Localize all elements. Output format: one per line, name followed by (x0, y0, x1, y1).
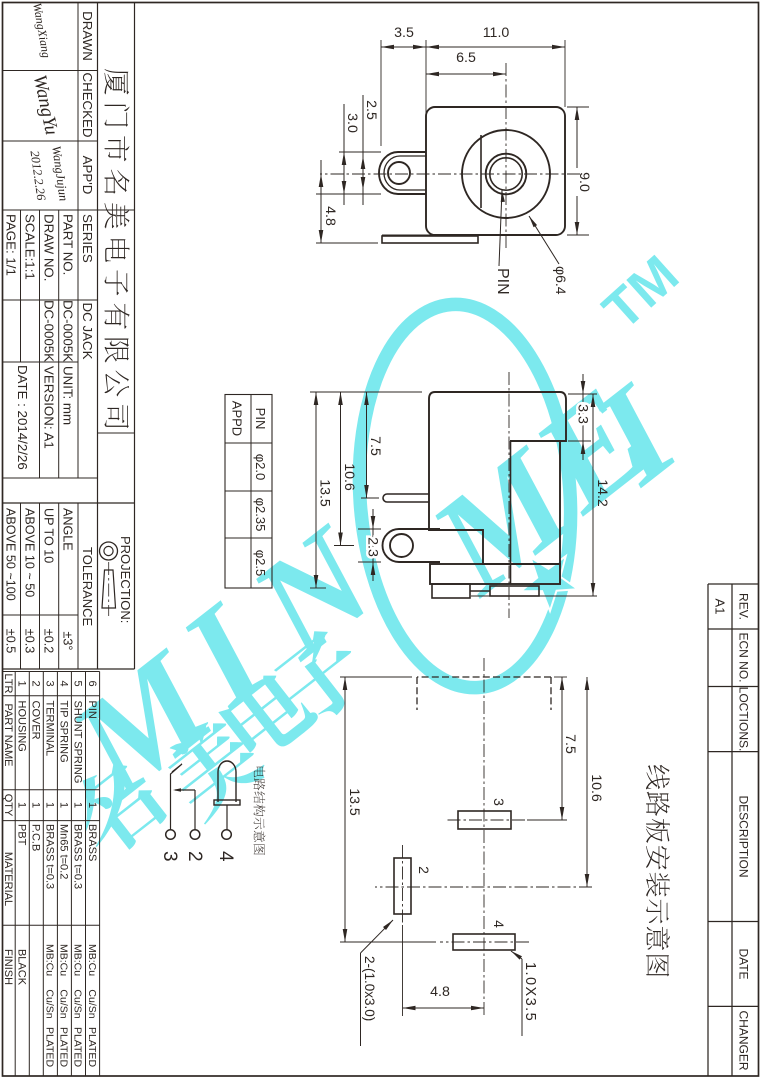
svg-text:PLATED: PLATED (44, 1027, 56, 1067)
svg-text:3.0: 3.0 (344, 113, 360, 133)
svg-text:CHANGER: CHANGER (737, 1010, 751, 1070)
svg-text:PLATED: PLATED (86, 1027, 98, 1067)
svg-text:1: 1 (30, 802, 42, 808)
svg-text:6.5: 6.5 (456, 50, 476, 66)
svg-text:4: 4 (58, 680, 70, 686)
svg-text:7.5: 7.5 (367, 436, 383, 456)
svg-text:±0.5: ±0.5 (4, 629, 18, 653)
svg-text:A1: A1 (713, 599, 728, 615)
svg-text:PBT: PBT (15, 824, 27, 846)
svg-text:LTR: LTR (2, 674, 14, 694)
svg-text:SHUNT SPRING: SHUNT SPRING (72, 701, 84, 784)
svg-text:DC JACK: DC JACK (80, 303, 95, 360)
svg-text:TIP SPRING: TIP SPRING (58, 701, 70, 763)
svg-text:5: 5 (72, 680, 84, 686)
svg-text:1: 1 (15, 802, 27, 808)
svg-text:PAGE: 1/1: PAGE: 1/1 (4, 214, 19, 276)
svg-text:φ2.35: φ2.35 (253, 498, 268, 532)
svg-text:PART NO.: PART NO. (61, 214, 76, 275)
svg-text:DESCRIPTION: DESCRIPTION (737, 795, 751, 877)
svg-text:PLATED: PLATED (72, 1027, 84, 1067)
svg-text:VERSION: A1: VERSION: A1 (42, 366, 57, 449)
svg-text:ABOVE 10 ~ 50: ABOVE 10 ~ 50 (23, 508, 37, 597)
svg-text:3.3: 3.3 (575, 404, 591, 424)
svg-text:φ6.4: φ6.4 (553, 266, 569, 295)
svg-text:PIN: PIN (86, 701, 98, 719)
svg-text:1: 1 (44, 802, 56, 808)
svg-text:BRASS: BRASS (86, 824, 98, 861)
svg-text:MB:Cu: MB:Cu (72, 944, 84, 976)
svg-text:MB:Cu: MB:Cu (58, 944, 70, 976)
svg-text:UNIT: mm: UNIT: mm (61, 366, 76, 425)
svg-text:QTY: QTY (2, 794, 14, 817)
svg-text:BLACK: BLACK (15, 949, 27, 986)
svg-text:4: 4 (491, 920, 507, 928)
svg-text:±0.2: ±0.2 (42, 629, 56, 653)
svg-text:φ2.0: φ2.0 (253, 454, 268, 481)
svg-text:SCALE:1:1: SCALE:1:1 (23, 214, 38, 280)
svg-text:Cu/Sn: Cu/Sn (72, 989, 84, 1018)
svg-text:MB:Cu: MB:Cu (86, 944, 98, 976)
svg-text:APP'D: APP'D (80, 156, 95, 195)
svg-text:DC-0005K: DC-0005K (61, 300, 76, 362)
svg-text:±3°: ±3° (61, 632, 75, 651)
svg-text:2.3: 2.3 (365, 537, 381, 557)
svg-text:7.5: 7.5 (562, 734, 578, 754)
svg-text:PART NAME: PART NAME (2, 704, 14, 767)
svg-text:CHECKED: CHECKED (80, 72, 95, 137)
svg-text:APPD: APPD (230, 401, 245, 436)
svg-text:PLATED: PLATED (58, 1027, 70, 1067)
svg-text:BRASS t=0.3: BRASS t=0.3 (44, 824, 56, 889)
svg-text:ECN NO.: ECN NO. (737, 632, 751, 682)
svg-text:PROJECTION:: PROJECTION: (118, 536, 133, 623)
svg-text:ANGLE: ANGLE (61, 508, 75, 551)
svg-text:DRAWN: DRAWN (80, 11, 95, 61)
svg-text:DC-0005K: DC-0005K (42, 300, 57, 362)
svg-text:4: 4 (215, 851, 236, 862)
svg-text:UP TO 10: UP TO 10 (42, 508, 56, 563)
svg-text:3: 3 (159, 851, 180, 862)
svg-text:PIN: PIN (494, 268, 511, 295)
svg-text:DRAW NO.: DRAW NO. (42, 214, 57, 281)
svg-text:10.6: 10.6 (588, 774, 604, 802)
svg-text:1: 1 (15, 680, 27, 686)
svg-text:4.8: 4.8 (322, 206, 338, 226)
svg-text:TERMINAL: TERMINAL (44, 701, 56, 757)
svg-text:DATE: DATE (737, 948, 751, 979)
svg-text:Cu/Sn: Cu/Sn (58, 989, 70, 1018)
svg-text:LOCTIONS.: LOCTIONS. (737, 687, 751, 752)
svg-text:10.6: 10.6 (341, 463, 357, 491)
svg-text:2: 2 (30, 680, 42, 686)
svg-text:PIN: PIN (253, 408, 268, 430)
svg-text:14.2: 14.2 (594, 479, 610, 507)
svg-text:11.0: 11.0 (483, 25, 510, 41)
svg-text:1: 1 (86, 802, 98, 808)
svg-text:Cu/Sn: Cu/Sn (86, 989, 98, 1018)
svg-text:DATE : 2014/2/26: DATE : 2014/2/26 (15, 365, 30, 470)
svg-text:1: 1 (72, 802, 84, 808)
svg-text:FINISH: FINISH (2, 949, 14, 985)
svg-text:±0.3: ±0.3 (23, 629, 37, 653)
svg-text:REV.: REV. (737, 593, 751, 620)
svg-text:COVER: COVER (30, 701, 42, 740)
svg-text:SERIES: SERIES (80, 214, 95, 263)
svg-text:ABOVE 50 ~100: ABOVE 50 ~100 (4, 508, 18, 601)
svg-text:9.0: 9.0 (576, 172, 592, 192)
svg-text:2: 2 (416, 866, 432, 874)
svg-text:Mn65 t=0.2: Mn65 t=0.2 (58, 824, 70, 879)
svg-text:1: 1 (58, 802, 70, 808)
svg-text:TOLERANCE: TOLERANCE (80, 547, 95, 627)
svg-text:3: 3 (491, 798, 507, 806)
svg-text:Cu/Sn: Cu/Sn (44, 989, 56, 1018)
svg-text:MB:Cu: MB:Cu (44, 944, 56, 976)
svg-text:13.5: 13.5 (346, 788, 362, 816)
svg-text:13.5: 13.5 (317, 479, 333, 507)
svg-text:1.0X3.5: 1.0X3.5 (522, 962, 538, 1022)
svg-text:φ2.5: φ2.5 (253, 550, 268, 577)
svg-text:2.5: 2.5 (363, 100, 379, 120)
svg-text:MATERIAL: MATERIAL (2, 852, 14, 906)
svg-text:BRASS t=0.3: BRASS t=0.3 (72, 824, 84, 889)
svg-text:6: 6 (86, 680, 98, 686)
svg-text:3: 3 (44, 680, 56, 686)
svg-text:3.5: 3.5 (394, 25, 414, 41)
svg-text:4.8: 4.8 (430, 984, 450, 1000)
svg-text:P.C.B: P.C.B (30, 824, 42, 851)
svg-text:HOUSING: HOUSING (15, 701, 27, 752)
svg-text:2: 2 (184, 851, 205, 862)
svg-text:2-(1.0x3.0): 2-(1.0x3.0) (362, 956, 377, 1021)
